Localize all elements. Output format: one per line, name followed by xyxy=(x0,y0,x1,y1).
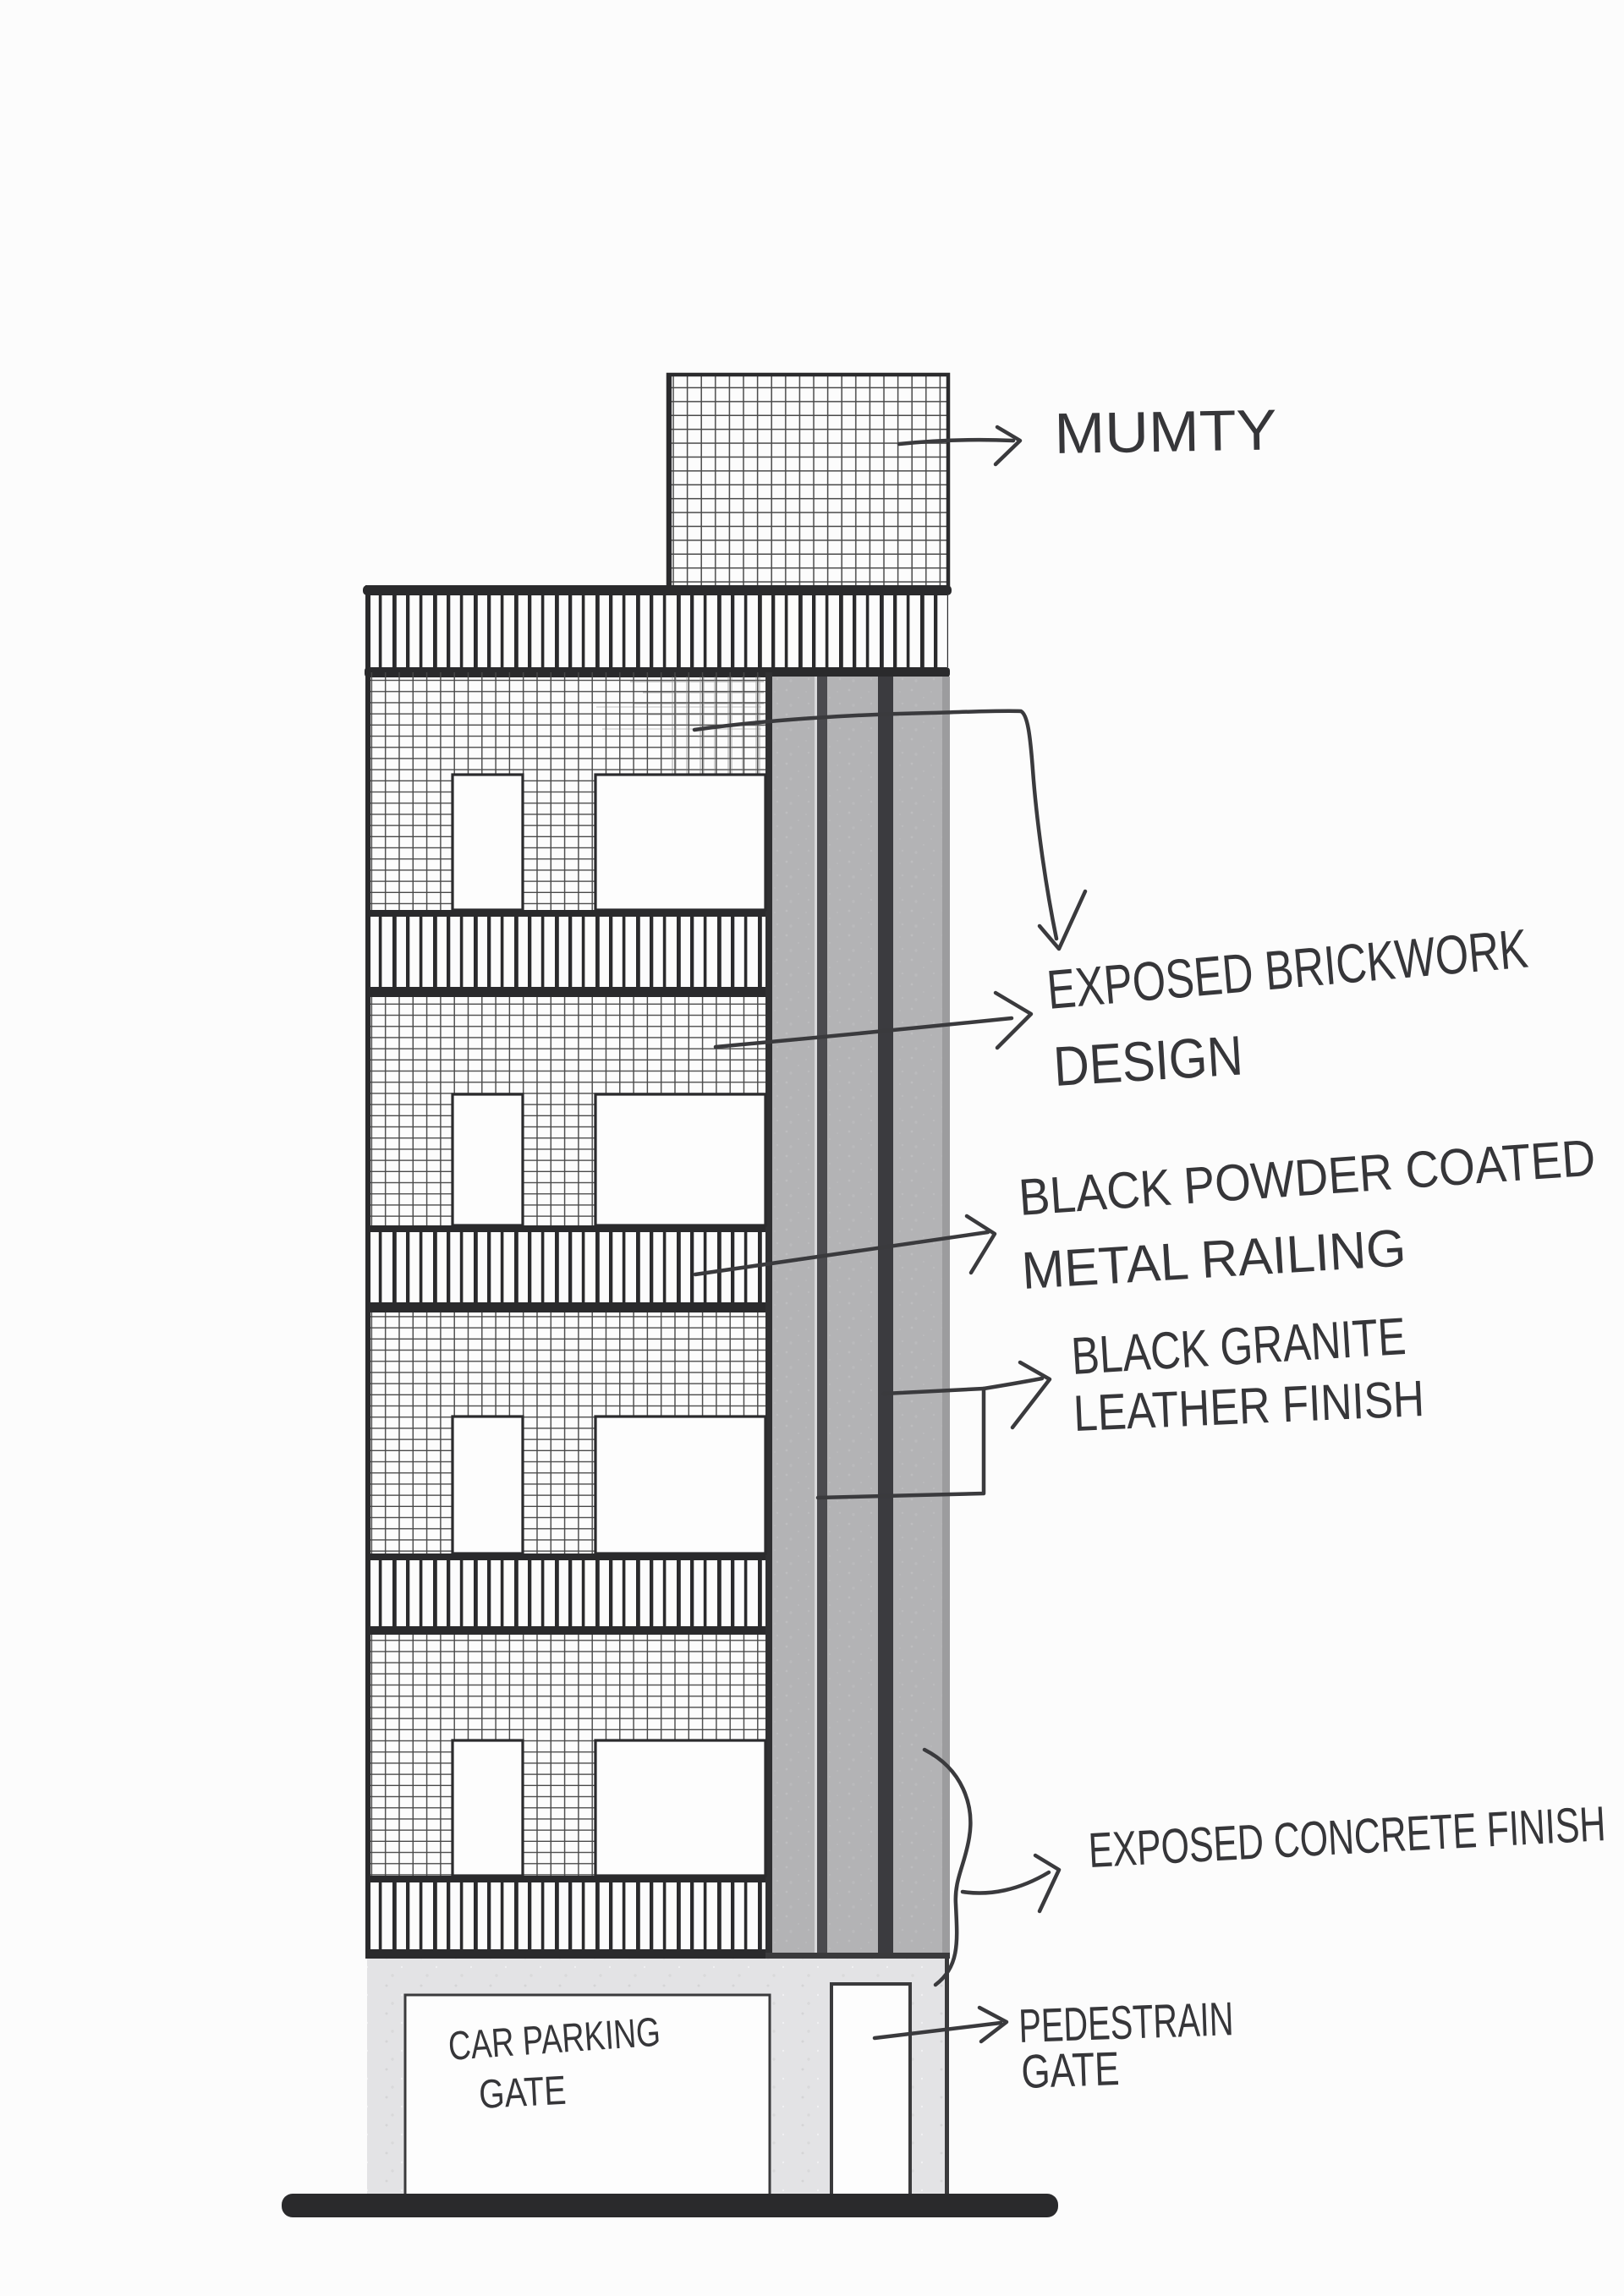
svg-text:GATE: GATE xyxy=(478,2069,568,2118)
svg-text:MUMTY: MUMTY xyxy=(1054,397,1277,466)
svg-text:GATE: GATE xyxy=(1020,2041,1120,2098)
svg-text:DESIGN: DESIGN xyxy=(1051,1023,1244,1098)
